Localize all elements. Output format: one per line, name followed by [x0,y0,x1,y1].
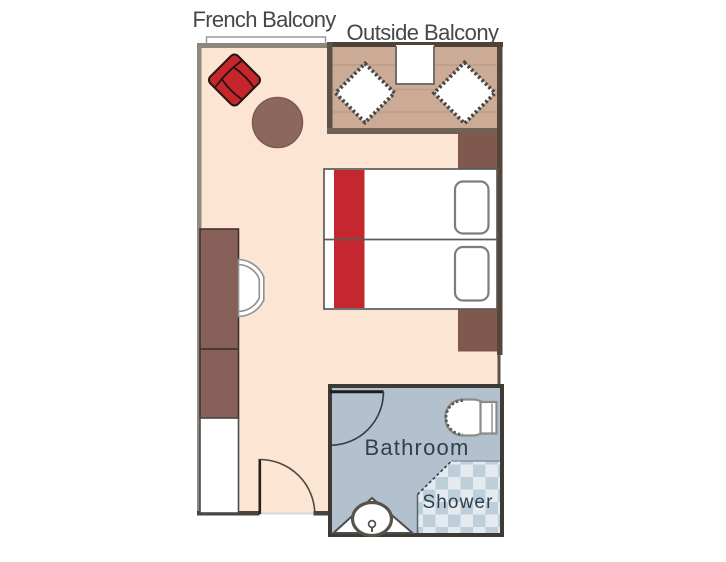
svg-text:French Balcony: French Balcony [193,7,337,32]
svg-text:Outside Balcony: Outside Balcony [347,20,499,45]
svg-text:Shower: Shower [422,492,493,513]
svg-text:Bathroom: Bathroom [365,435,470,460]
